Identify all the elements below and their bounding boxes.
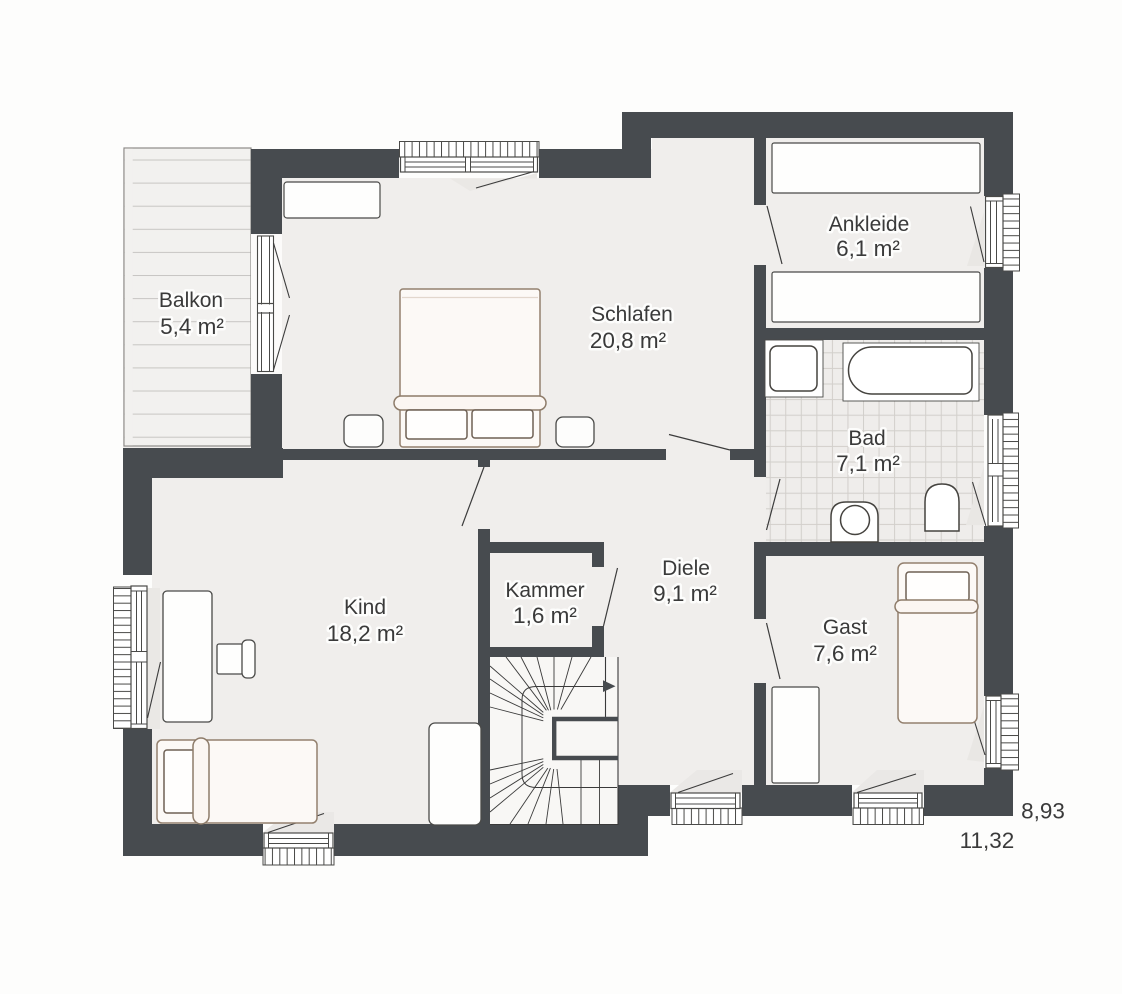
svg-text:20,8 m²: 20,8 m² (590, 328, 667, 353)
svg-text:1,6 m²: 1,6 m² (513, 603, 577, 628)
svg-text:7,1 m²: 7,1 m² (836, 451, 900, 476)
svg-text:5,4 m²: 5,4 m² (160, 314, 224, 339)
svg-text:Schlafen: Schlafen (591, 303, 673, 326)
svg-text:Gast: Gast (823, 616, 868, 639)
svg-text:Kind: Kind (344, 596, 386, 619)
svg-text:18,2 m²: 18,2 m² (327, 621, 404, 646)
svg-text:Balkon: Balkon (159, 289, 223, 312)
svg-text:7,6 m²: 7,6 m² (813, 641, 877, 666)
svg-text:Diele: Diele (662, 557, 710, 580)
svg-text:Kammer: Kammer (505, 579, 584, 602)
svg-text:Ankleide: Ankleide (829, 213, 910, 236)
svg-text:9,1 m²: 9,1 m² (653, 581, 717, 606)
svg-text:8,93: 8,93 (1021, 799, 1065, 824)
svg-text:11,32: 11,32 (960, 828, 1015, 853)
svg-text:Bad: Bad (848, 427, 885, 450)
svg-text:6,1 m²: 6,1 m² (836, 236, 900, 261)
